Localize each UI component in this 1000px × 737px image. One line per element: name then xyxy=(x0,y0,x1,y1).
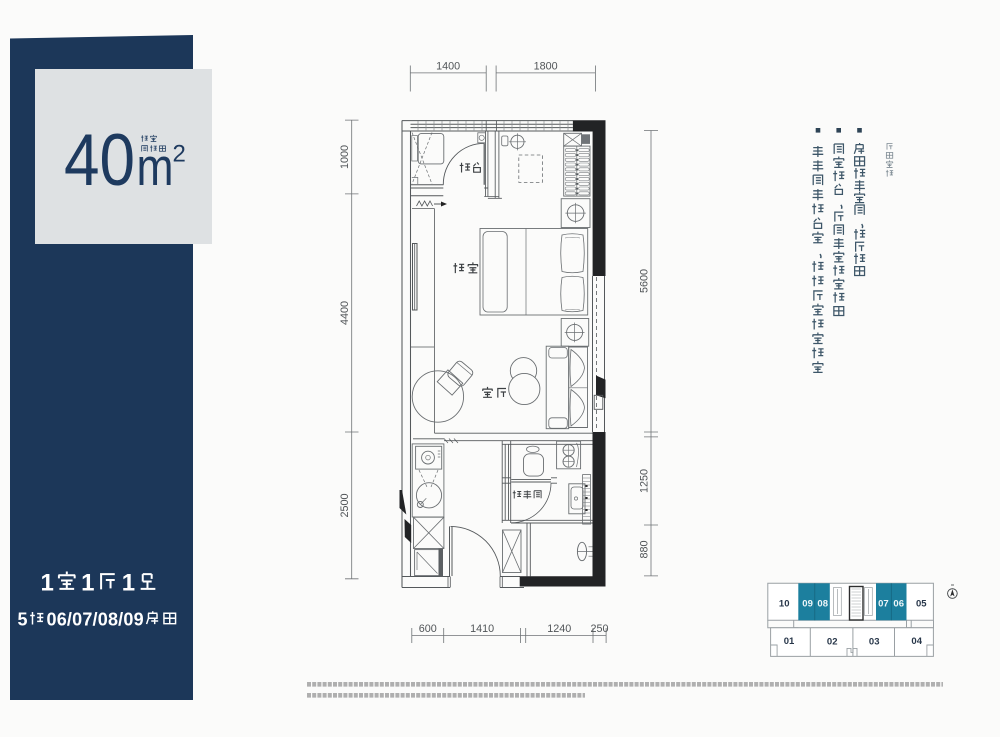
svg-text:01: 01 xyxy=(784,636,795,647)
svg-text:40: 40 xyxy=(64,120,135,201)
svg-text:1240: 1240 xyxy=(547,623,571,635)
svg-text:04: 04 xyxy=(911,636,922,647)
svg-text:08: 08 xyxy=(817,598,828,609)
svg-text:1410: 1410 xyxy=(470,623,494,635)
svg-text:5: 5 xyxy=(18,610,28,630)
svg-text:5600: 5600 xyxy=(639,269,651,293)
svg-text:07: 07 xyxy=(878,598,889,609)
svg-text:05: 05 xyxy=(916,598,927,609)
svg-text:06: 06 xyxy=(893,598,904,609)
svg-text:1: 1 xyxy=(41,570,54,597)
svg-text:02: 02 xyxy=(827,637,838,648)
svg-text:10: 10 xyxy=(779,598,790,609)
svg-text:09: 09 xyxy=(802,598,813,609)
svg-text:1400: 1400 xyxy=(436,61,460,73)
svg-text:880: 880 xyxy=(639,540,651,558)
svg-text:2500: 2500 xyxy=(339,493,351,517)
svg-text:4400: 4400 xyxy=(339,301,351,325)
svg-text:03: 03 xyxy=(869,637,880,648)
svg-text:1800: 1800 xyxy=(534,61,558,73)
svg-text:1: 1 xyxy=(122,570,135,597)
svg-text:06/07/08/09: 06/07/08/09 xyxy=(47,610,144,630)
svg-text:1: 1 xyxy=(81,570,94,597)
svg-text:1000: 1000 xyxy=(339,145,351,169)
svg-text:600: 600 xyxy=(419,623,437,635)
svg-text:1250: 1250 xyxy=(639,469,651,493)
svg-text:250: 250 xyxy=(590,623,608,635)
svg-text:2: 2 xyxy=(173,141,186,168)
